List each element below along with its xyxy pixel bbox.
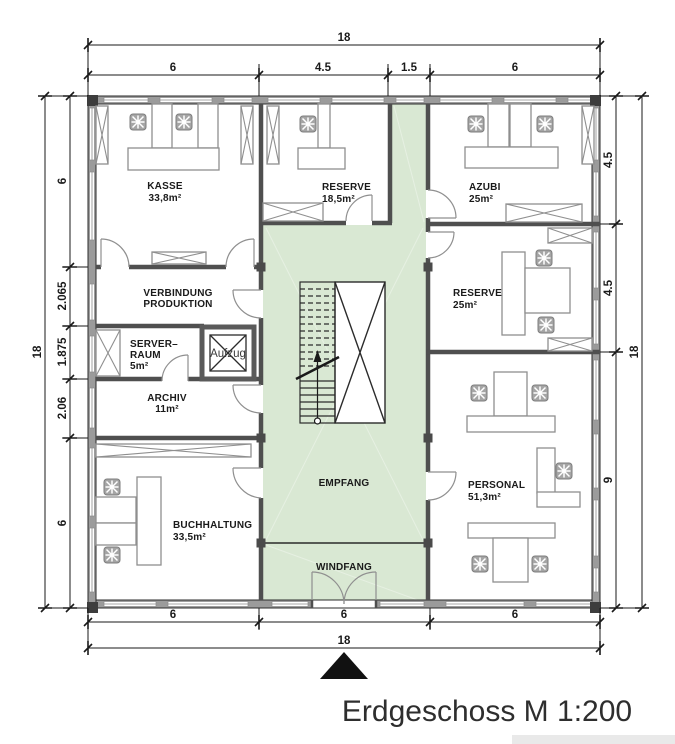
door [428, 232, 454, 258]
office-chair-icon [532, 385, 548, 401]
room-area-personal: 51,3m² [468, 492, 501, 503]
floor-plan-page: KASSE 33,8m² RESERVE 18,5m² AZUBI 25m² V… [0, 0, 675, 744]
room-label-azubi: AZUBI [469, 182, 501, 193]
desk [198, 104, 218, 148]
office-chair-icon [536, 250, 552, 266]
dim-bottom-1: 6 [170, 609, 176, 621]
desk [493, 538, 528, 582]
dim-left-5: 6 [57, 520, 69, 526]
office-chair-icon [104, 547, 120, 563]
room-label-reserve-top: RESERVE [322, 182, 371, 193]
room-area-reserve-mid: 25m² [453, 300, 478, 311]
dim-top-3: 1.5 [401, 62, 418, 74]
room-label-reserve-mid: RESERVE [453, 288, 502, 299]
desk [318, 104, 330, 148]
desk [494, 372, 527, 416]
office-chair-icon [537, 116, 553, 132]
elevator-label: Aufzug [210, 348, 246, 360]
desk [537, 448, 555, 493]
room-area-server: 5m² [130, 361, 149, 372]
office-chair-icon [556, 463, 572, 479]
desk [96, 523, 136, 545]
desk [298, 148, 345, 169]
door [101, 239, 129, 267]
dim-left-4: 2.06 [57, 397, 69, 419]
room-label-empfang: EMPFANG [319, 478, 370, 489]
dim-left-total: 18 [32, 345, 44, 358]
door [162, 355, 188, 381]
north-arrow-icon [320, 652, 368, 679]
room-area-reserve-top: 18,5m² [322, 194, 355, 205]
dim-left-1: 6 [57, 178, 69, 184]
room-label-archiv: ARCHIV [147, 393, 187, 404]
office-chair-icon [538, 317, 554, 333]
office-chair-icon [104, 479, 120, 495]
desk [525, 268, 570, 313]
office-chair-icon [300, 116, 316, 132]
door [233, 385, 261, 413]
desk [502, 252, 525, 335]
plan-title: Erdgeschoss M 1:200 [342, 695, 632, 728]
office-chair-icon [472, 556, 488, 572]
dim-bottom-2: 6 [341, 609, 347, 621]
room-label-server-2: RAUM [130, 350, 161, 361]
room-area-archiv: 11m² [155, 404, 179, 415]
dim-right-total: 18 [629, 345, 641, 358]
dim-left-3: 1.875 [57, 337, 69, 366]
office-chair-icon [468, 116, 484, 132]
room-area-kasse: 33,8m² [149, 193, 182, 204]
room-area-buchhaltung: 33,5m² [173, 532, 206, 543]
room-label-verbindung-1: VERBINDUNG [143, 288, 212, 299]
footer-bar [512, 735, 675, 744]
room-label-buchhaltung: BUCHHALTUNG [173, 520, 252, 531]
desk [510, 104, 531, 147]
desk [537, 492, 580, 507]
desk [137, 477, 161, 565]
door [428, 472, 456, 500]
desk [152, 104, 172, 148]
door [226, 239, 254, 267]
office-chair-icon [130, 114, 146, 130]
office-chair-icon [471, 385, 487, 401]
desk [467, 416, 555, 432]
dim-right-1: 4.5 [603, 151, 615, 168]
office-chair-icon [532, 556, 548, 572]
room-label-server-1: SERVER– [130, 339, 178, 350]
dim-right-3: 9 [603, 477, 615, 483]
door [233, 468, 261, 498]
dim-bottom-total: 18 [338, 635, 351, 647]
door [428, 190, 456, 218]
dim-top-1: 6 [170, 62, 176, 74]
room-label-personal: PERSONAL [468, 480, 525, 491]
dim-top-total: 18 [338, 32, 351, 44]
office-chair-icon [176, 114, 192, 130]
windows-top [104, 98, 592, 103]
floor-plan-drawing: KASSE 33,8m² RESERVE 18,5m² AZUBI 25m² V… [0, 0, 675, 744]
dim-left-2: 2.065 [57, 281, 69, 310]
door [233, 290, 261, 318]
dim-top-2: 4.5 [315, 62, 332, 74]
room-label-verbindung-2: PRODUKTION [143, 299, 212, 310]
room-label-windfang: WINDFANG [316, 562, 372, 573]
desk [96, 497, 136, 523]
dim-right-2: 4.5 [603, 279, 615, 296]
desk [468, 523, 555, 538]
room-area-azubi: 25m² [469, 194, 494, 205]
desk [128, 148, 219, 170]
desk [488, 104, 509, 147]
dim-top-4: 6 [512, 62, 518, 74]
room-label-kasse: KASSE [147, 181, 183, 192]
dim-bottom-3: 6 [512, 609, 518, 621]
desk [465, 147, 558, 168]
